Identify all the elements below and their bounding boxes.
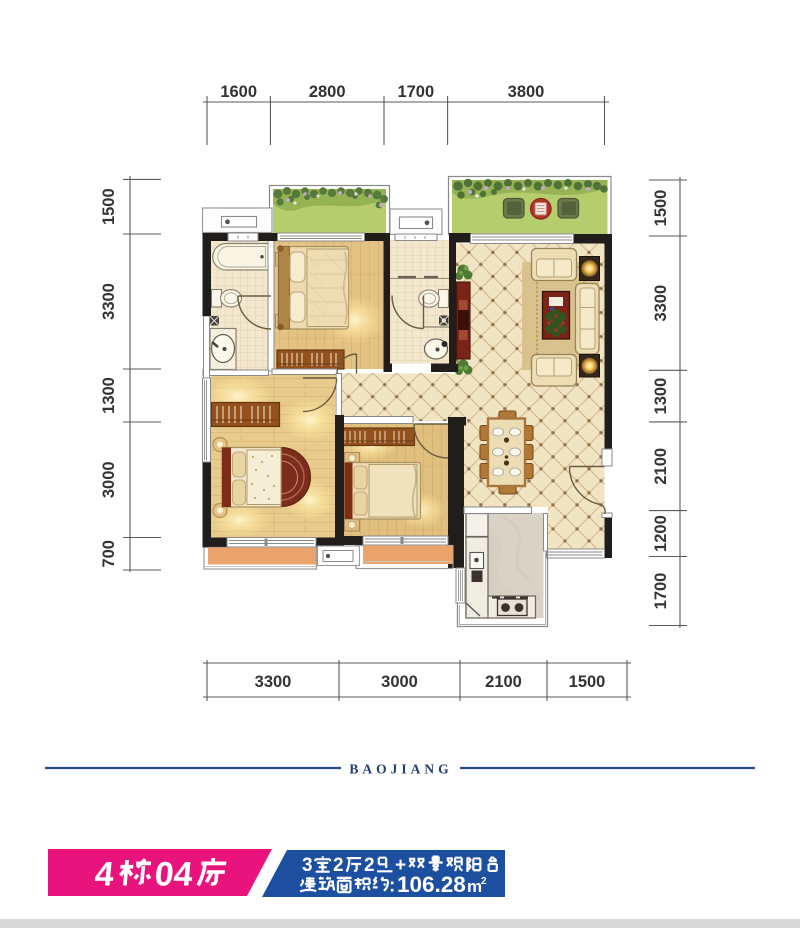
svg-text:2100: 2100 <box>652 448 670 485</box>
svg-text:3300: 3300 <box>100 283 118 320</box>
svg-text:m: m <box>467 877 482 896</box>
svg-text:106.28: 106.28 <box>397 872 466 897</box>
svg-text:3800: 3800 <box>508 83 545 101</box>
svg-text:2: 2 <box>364 855 375 876</box>
svg-text:BAOJIANG: BAOJIANG <box>349 762 452 777</box>
svg-text:2: 2 <box>481 876 487 887</box>
svg-text:700: 700 <box>100 540 118 568</box>
svg-text:1300: 1300 <box>100 377 118 414</box>
svg-text:1300: 1300 <box>652 378 670 415</box>
svg-text:1200: 1200 <box>652 515 670 552</box>
svg-text:3300: 3300 <box>652 285 670 322</box>
svg-text::: : <box>389 876 395 897</box>
svg-text:3000: 3000 <box>381 673 418 691</box>
svg-text:2100: 2100 <box>485 673 522 691</box>
svg-text:3300: 3300 <box>255 673 292 691</box>
svg-text:1500: 1500 <box>652 190 670 227</box>
svg-text:1500: 1500 <box>569 673 606 691</box>
svg-text:2: 2 <box>333 855 344 876</box>
svg-text:1700: 1700 <box>652 573 670 610</box>
svg-text:1600: 1600 <box>220 83 257 101</box>
svg-text:3: 3 <box>302 855 313 876</box>
svg-text:3000: 3000 <box>100 461 118 498</box>
svg-text:1700: 1700 <box>397 83 434 101</box>
svg-text:4: 4 <box>93 856 115 894</box>
svg-text:2800: 2800 <box>309 83 346 101</box>
svg-text:04: 04 <box>153 856 194 894</box>
svg-text:1500: 1500 <box>100 188 118 225</box>
